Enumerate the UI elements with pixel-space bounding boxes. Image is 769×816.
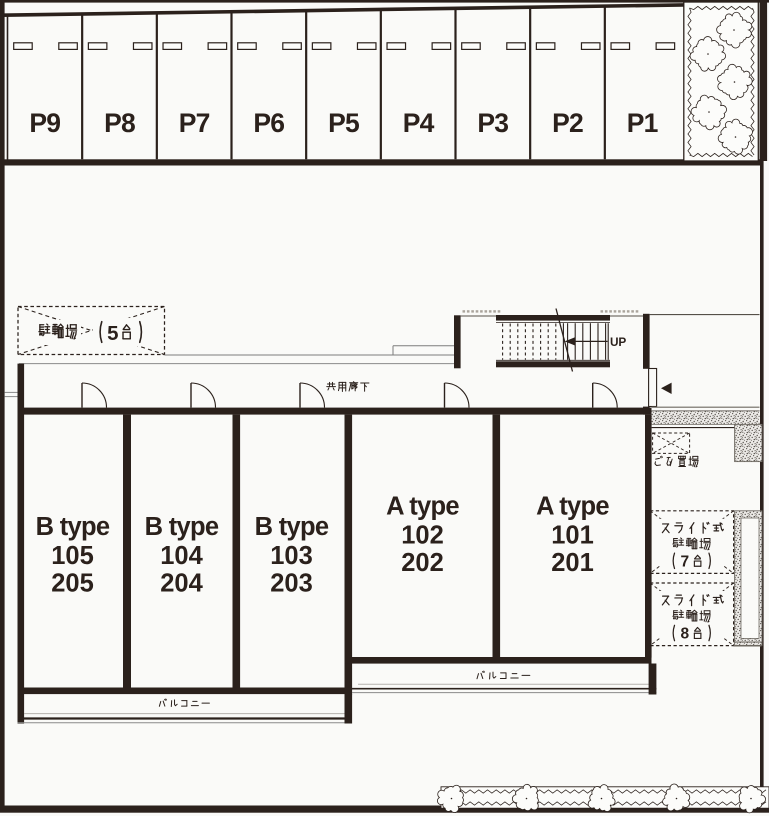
- svg-text:102: 102: [401, 522, 444, 550]
- svg-text:B type: B type: [145, 513, 219, 541]
- svg-text:101: 101: [551, 522, 594, 550]
- svg-text:P4: P4: [403, 108, 435, 138]
- svg-text:P3: P3: [477, 108, 508, 138]
- svg-text:104: 104: [160, 542, 203, 570]
- svg-text:P7: P7: [179, 108, 210, 138]
- svg-text:8: 8: [680, 626, 689, 643]
- svg-text:5: 5: [107, 322, 118, 345]
- svg-text:7: 7: [680, 553, 689, 570]
- svg-text:203: 203: [270, 570, 313, 598]
- svg-text:P5: P5: [328, 108, 359, 138]
- svg-text:B type: B type: [36, 513, 110, 541]
- svg-text:P6: P6: [253, 108, 284, 138]
- svg-text:103: 103: [270, 542, 313, 570]
- svg-text:B type: B type: [255, 513, 329, 541]
- svg-text:A type: A type: [386, 493, 459, 521]
- svg-text:P8: P8: [104, 108, 135, 138]
- svg-text:205: 205: [51, 570, 94, 598]
- svg-text:P9: P9: [29, 108, 60, 138]
- svg-text:P2: P2: [552, 108, 583, 138]
- svg-text:UP: UP: [610, 335, 626, 349]
- svg-text:201: 201: [551, 549, 594, 577]
- svg-text:202: 202: [401, 549, 444, 577]
- svg-text:105: 105: [51, 542, 94, 570]
- svg-text:P1: P1: [627, 108, 658, 138]
- svg-text:204: 204: [160, 570, 203, 598]
- svg-text:A type: A type: [536, 493, 609, 521]
